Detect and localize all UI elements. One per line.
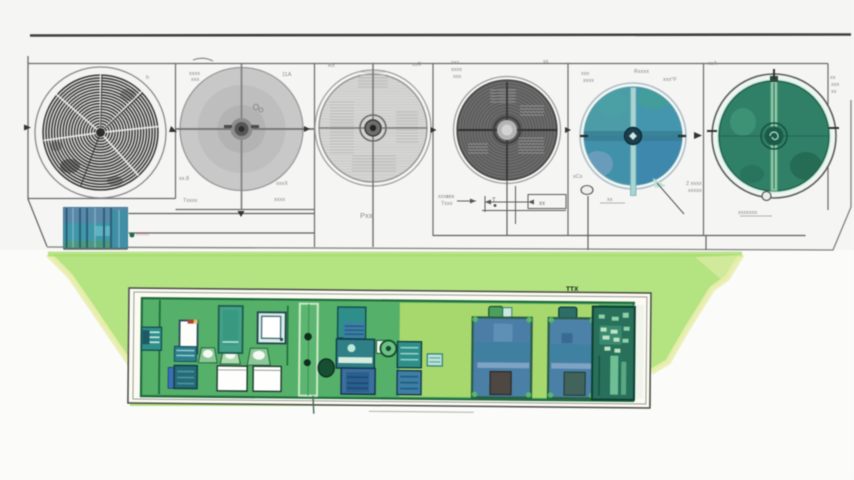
svg-text:xxA: xxA (708, 61, 718, 67)
svg-text:Rxxxx: Rxxxx (634, 69, 649, 75)
svg-text:xx: xx (543, 59, 549, 65)
svg-text:2 xxxx: 2 xxxx (686, 181, 702, 187)
svg-text:xxxxxxx: xxxxxxx (738, 210, 758, 216)
svg-text:xxxxx: xxxxx (688, 188, 702, 194)
svg-text:xxx°F: xxx°F (663, 77, 677, 83)
svg-text:xx: xx (831, 89, 837, 95)
svg-text:xxxx: xxxx (451, 67, 462, 73)
svg-text:xx: xx (607, 197, 613, 203)
svg-text:h: h (146, 75, 149, 81)
svg-text:xxxx: xxxx (583, 78, 594, 84)
svg-text:xxx: xxx (453, 74, 462, 80)
svg-text:xxx: xxx (581, 71, 590, 77)
svg-text:xxx: xxx (451, 60, 460, 66)
svg-text:xxR: xxR (412, 62, 422, 68)
svg-text:Txxxx: Txxxx (183, 198, 198, 204)
svg-text:Rx: Rx (328, 63, 335, 69)
svg-text:xx.8: xx.8 (179, 176, 189, 182)
svg-text:Txxx: Txxx (441, 201, 453, 207)
svg-text:xxxx: xxxx (438, 194, 449, 200)
svg-text:xxxX: xxxX (276, 181, 288, 187)
svg-text:Pxx: Pxx (360, 211, 373, 220)
svg-text:11A: 11A (282, 72, 292, 78)
svg-text:T: T (492, 198, 496, 204)
svg-text:xxxx: xxxx (274, 197, 285, 203)
svg-text:xx: xx (830, 75, 836, 81)
svg-text:xxx: xxx (191, 77, 200, 83)
svg-text:xxx: xxx (831, 82, 840, 88)
svg-text:xx: xx (539, 201, 545, 207)
svg-text:xCx: xCx (573, 174, 583, 180)
svg-text:TTX: TTX (566, 286, 579, 293)
